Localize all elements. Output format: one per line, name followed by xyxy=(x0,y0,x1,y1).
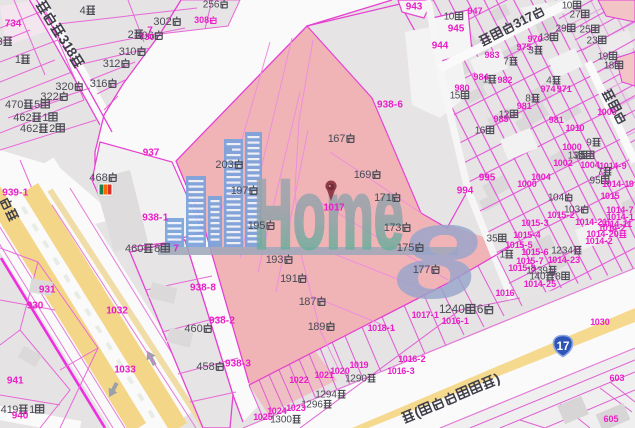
svg-text:4: 4 xyxy=(331,390,337,401)
svg-text:2: 2 xyxy=(128,29,134,41)
svg-text:3: 3 xyxy=(528,46,534,57)
svg-text:6: 6 xyxy=(317,400,323,411)
svg-text:0: 0 xyxy=(38,301,44,312)
svg-text:1: 1 xyxy=(42,112,48,124)
svg-text:2: 2 xyxy=(166,16,172,28)
svg-text:4: 4 xyxy=(536,230,541,240)
svg-text:3: 3 xyxy=(575,205,581,216)
svg-text:6: 6 xyxy=(477,302,484,316)
svg-text:7: 7 xyxy=(339,133,345,145)
svg-text:1: 1 xyxy=(434,310,439,320)
svg-text:9: 9 xyxy=(612,107,617,117)
svg-text:3: 3 xyxy=(410,366,415,376)
svg-text:5: 5 xyxy=(615,191,620,201)
svg-text:4: 4 xyxy=(546,172,551,182)
svg-text:8: 8 xyxy=(395,204,478,321)
svg-text:4: 4 xyxy=(468,186,474,197)
svg-text:9: 9 xyxy=(586,138,592,149)
svg-text:3: 3 xyxy=(395,222,401,234)
svg-text:1: 1 xyxy=(18,376,24,387)
svg-text:4: 4 xyxy=(80,5,86,17)
svg-text:8: 8 xyxy=(609,61,615,72)
svg-text:1: 1 xyxy=(329,370,334,380)
svg-text:3: 3 xyxy=(495,50,500,60)
svg-text:5: 5 xyxy=(459,24,465,35)
svg-text:1: 1 xyxy=(464,316,469,326)
svg-text:5: 5 xyxy=(259,220,265,232)
svg-text:4: 4 xyxy=(16,19,22,30)
svg-text:0: 0 xyxy=(23,411,29,422)
svg-text:3: 3 xyxy=(130,365,136,376)
svg-text:Home: Home xyxy=(254,159,404,269)
svg-text:1: 1 xyxy=(483,75,489,86)
svg-text:0: 0 xyxy=(614,229,619,239)
svg-text:2: 2 xyxy=(53,91,59,103)
svg-text:6: 6 xyxy=(214,0,220,11)
svg-text:5: 5 xyxy=(408,242,414,254)
svg-text:3: 3 xyxy=(301,403,306,413)
svg-text:8: 8 xyxy=(102,172,108,184)
svg-text:2: 2 xyxy=(304,375,309,385)
svg-text:9: 9 xyxy=(365,169,371,181)
svg-text:4: 4 xyxy=(551,84,556,94)
svg-text:1: 1 xyxy=(29,404,35,416)
svg-text:7: 7 xyxy=(242,185,248,197)
svg-text:0: 0 xyxy=(361,374,367,385)
svg-text:3: 3 xyxy=(573,151,579,162)
svg-text:1: 1 xyxy=(500,250,506,261)
svg-text:3: 3 xyxy=(245,359,251,370)
svg-text:0: 0 xyxy=(68,81,74,93)
svg-text:3: 3 xyxy=(0,36,3,48)
svg-text:7: 7 xyxy=(424,264,430,276)
svg-text:7: 7 xyxy=(597,167,603,178)
svg-text:2: 2 xyxy=(122,306,128,317)
svg-text:3: 3 xyxy=(544,33,550,44)
svg-text:9: 9 xyxy=(364,360,369,370)
svg-text:3: 3 xyxy=(417,2,423,13)
svg-text:4: 4 xyxy=(443,41,449,52)
svg-text:1: 1 xyxy=(559,115,564,125)
svg-text:0: 0 xyxy=(580,123,585,133)
svg-text:5: 5 xyxy=(585,25,591,36)
svg-text:5: 5 xyxy=(34,99,40,111)
svg-text:0: 0 xyxy=(197,323,203,335)
svg-text:9: 9 xyxy=(622,161,627,171)
svg-text:6: 6 xyxy=(101,78,107,90)
svg-text:7: 7 xyxy=(310,296,316,308)
svg-text:1: 1 xyxy=(627,219,632,229)
svg-text:2: 2 xyxy=(504,110,510,121)
svg-text:1: 1 xyxy=(50,285,56,296)
svg-text:2: 2 xyxy=(49,123,55,135)
svg-text:2: 2 xyxy=(608,236,613,246)
svg-text:17: 17 xyxy=(557,341,570,353)
svg-text:0: 0 xyxy=(458,302,465,316)
svg-text:0: 0 xyxy=(449,12,455,23)
svg-text:7: 7 xyxy=(173,244,179,255)
svg-text:2: 2 xyxy=(570,210,575,220)
svg-text:1: 1 xyxy=(15,54,21,66)
svg-text:3: 3 xyxy=(228,159,234,171)
svg-text:6: 6 xyxy=(510,288,515,298)
svg-text:2: 2 xyxy=(32,123,38,135)
svg-text:8: 8 xyxy=(209,361,215,373)
svg-text:3: 3 xyxy=(575,255,580,265)
svg-text:3: 3 xyxy=(277,254,283,266)
svg-text:2: 2 xyxy=(508,75,513,85)
svg-text:0: 0 xyxy=(130,46,136,58)
svg-text:1: 1 xyxy=(23,188,29,199)
svg-text:5: 5 xyxy=(551,279,556,289)
svg-text:6: 6 xyxy=(397,100,403,111)
svg-text:7: 7 xyxy=(575,10,581,21)
svg-text:5: 5 xyxy=(492,234,498,245)
svg-text:0: 0 xyxy=(137,243,143,255)
svg-text:1: 1 xyxy=(292,273,298,285)
svg-text:8: 8 xyxy=(204,15,209,25)
svg-text:6: 6 xyxy=(480,126,486,137)
svg-text:1: 1 xyxy=(527,101,532,111)
svg-text:1: 1 xyxy=(567,84,572,94)
svg-text:8: 8 xyxy=(210,283,216,294)
svg-text:3: 3 xyxy=(620,373,625,383)
svg-text:9: 9 xyxy=(319,321,325,333)
svg-text:7: 7 xyxy=(478,6,483,16)
svg-text:8: 8 xyxy=(555,272,561,283)
svg-text:5: 5 xyxy=(614,414,619,424)
svg-text:1: 1 xyxy=(163,213,169,224)
svg-text:3: 3 xyxy=(592,36,598,47)
svg-text:9: 9 xyxy=(561,24,567,35)
svg-text:5: 5 xyxy=(490,173,496,184)
svg-text:2: 2 xyxy=(114,58,120,70)
svg-text:9: 9 xyxy=(603,52,609,63)
svg-text:9: 9 xyxy=(629,179,634,189)
svg-text:2: 2 xyxy=(229,316,235,327)
svg-text:7: 7 xyxy=(339,203,345,214)
svg-text:0: 0 xyxy=(605,317,610,327)
svg-text:0: 0 xyxy=(567,1,573,12)
svg-text:0: 0 xyxy=(150,32,155,42)
svg-text:4: 4 xyxy=(559,193,565,204)
svg-text:1: 1 xyxy=(386,192,392,204)
svg-text:0: 0 xyxy=(532,179,537,189)
svg-text:1: 1 xyxy=(390,323,395,333)
svg-text:5: 5 xyxy=(455,91,461,102)
svg-text:8: 8 xyxy=(154,243,160,255)
svg-text:7: 7 xyxy=(154,148,160,159)
svg-text:2: 2 xyxy=(421,354,426,364)
svg-text:7: 7 xyxy=(503,57,509,68)
svg-text:0: 0 xyxy=(286,415,292,426)
svg-text:0: 0 xyxy=(17,99,23,111)
